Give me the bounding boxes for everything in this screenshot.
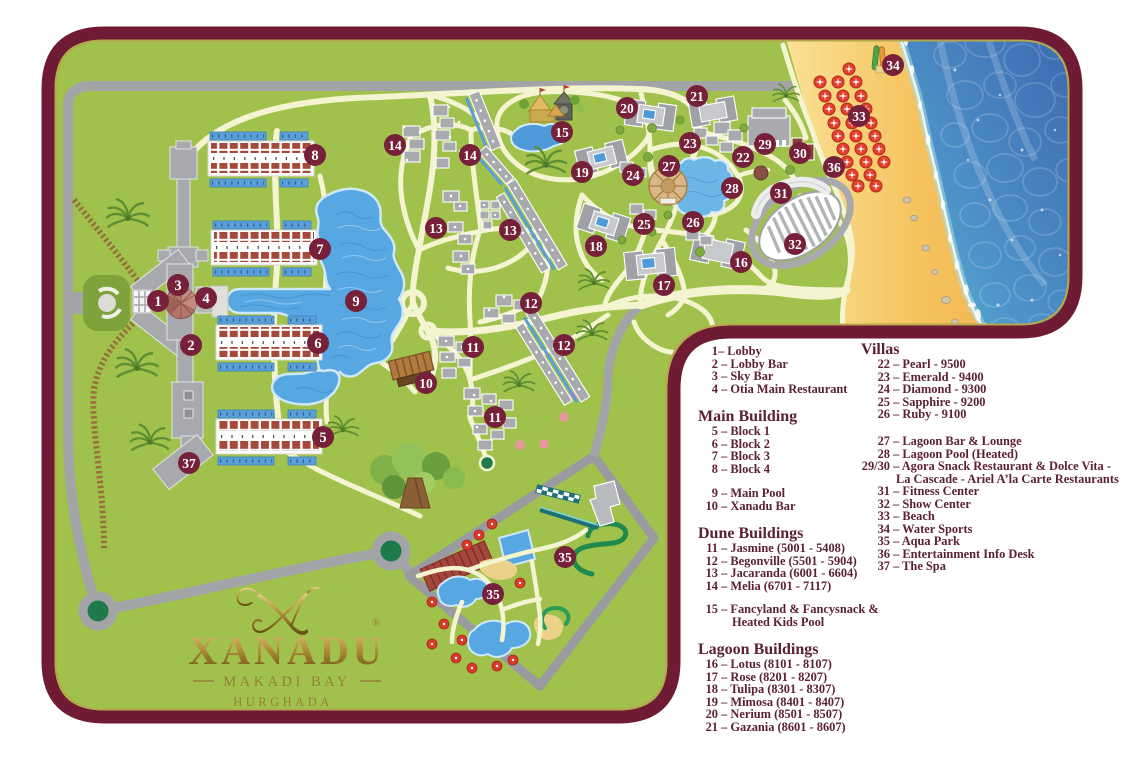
svg-text:4: 4 xyxy=(202,291,209,307)
svg-text:31: 31 xyxy=(774,186,788,201)
svg-text:20: 20 xyxy=(620,101,634,116)
svg-text:37: 37 xyxy=(182,456,196,471)
svg-text:10: 10 xyxy=(419,376,433,391)
svg-text:17: 17 xyxy=(657,278,671,293)
svg-text:3: 3 xyxy=(174,278,181,294)
svg-text:14: 14 xyxy=(388,138,402,153)
svg-text:13: 13 xyxy=(429,221,443,236)
svg-text:14: 14 xyxy=(463,148,477,163)
svg-text:11: 11 xyxy=(467,340,480,355)
svg-text:33: 33 xyxy=(852,109,866,124)
svg-text:23: 23 xyxy=(683,136,697,151)
svg-text:6: 6 xyxy=(314,336,321,352)
svg-text:2: 2 xyxy=(187,338,194,354)
svg-text:21: 21 xyxy=(690,89,704,104)
svg-text:19: 19 xyxy=(575,165,589,180)
svg-text:XANADU: XANADU xyxy=(188,628,385,673)
svg-text:®: ® xyxy=(372,617,380,629)
svg-text:MAKADI BAY: MAKADI BAY xyxy=(223,674,351,690)
svg-text:26: 26 xyxy=(686,215,700,230)
svg-text:32: 32 xyxy=(788,237,802,252)
svg-text:22: 22 xyxy=(736,150,750,165)
svg-text:5: 5 xyxy=(319,430,326,446)
svg-text:9: 9 xyxy=(352,294,359,310)
svg-text:7: 7 xyxy=(316,242,323,258)
svg-text:12: 12 xyxy=(524,296,538,311)
svg-text:8: 8 xyxy=(311,148,318,164)
svg-text:11: 11 xyxy=(489,410,502,425)
svg-text:36: 36 xyxy=(827,160,841,175)
svg-text:34: 34 xyxy=(886,58,900,73)
svg-text:25: 25 xyxy=(637,217,651,232)
svg-text:13: 13 xyxy=(503,223,517,238)
svg-text:24: 24 xyxy=(626,168,640,183)
svg-text:18: 18 xyxy=(589,239,603,254)
svg-text:1: 1 xyxy=(154,294,161,310)
svg-text:27: 27 xyxy=(662,159,676,174)
svg-text:28: 28 xyxy=(725,181,739,196)
svg-text:HURGHADA: HURGHADA xyxy=(233,695,333,709)
svg-text:15: 15 xyxy=(555,125,569,140)
svg-text:16: 16 xyxy=(734,255,748,270)
svg-text:29: 29 xyxy=(758,137,772,152)
svg-text:12: 12 xyxy=(557,338,571,353)
svg-text:30: 30 xyxy=(793,146,807,161)
svg-text:35: 35 xyxy=(486,587,500,602)
svg-text:35: 35 xyxy=(558,550,572,565)
